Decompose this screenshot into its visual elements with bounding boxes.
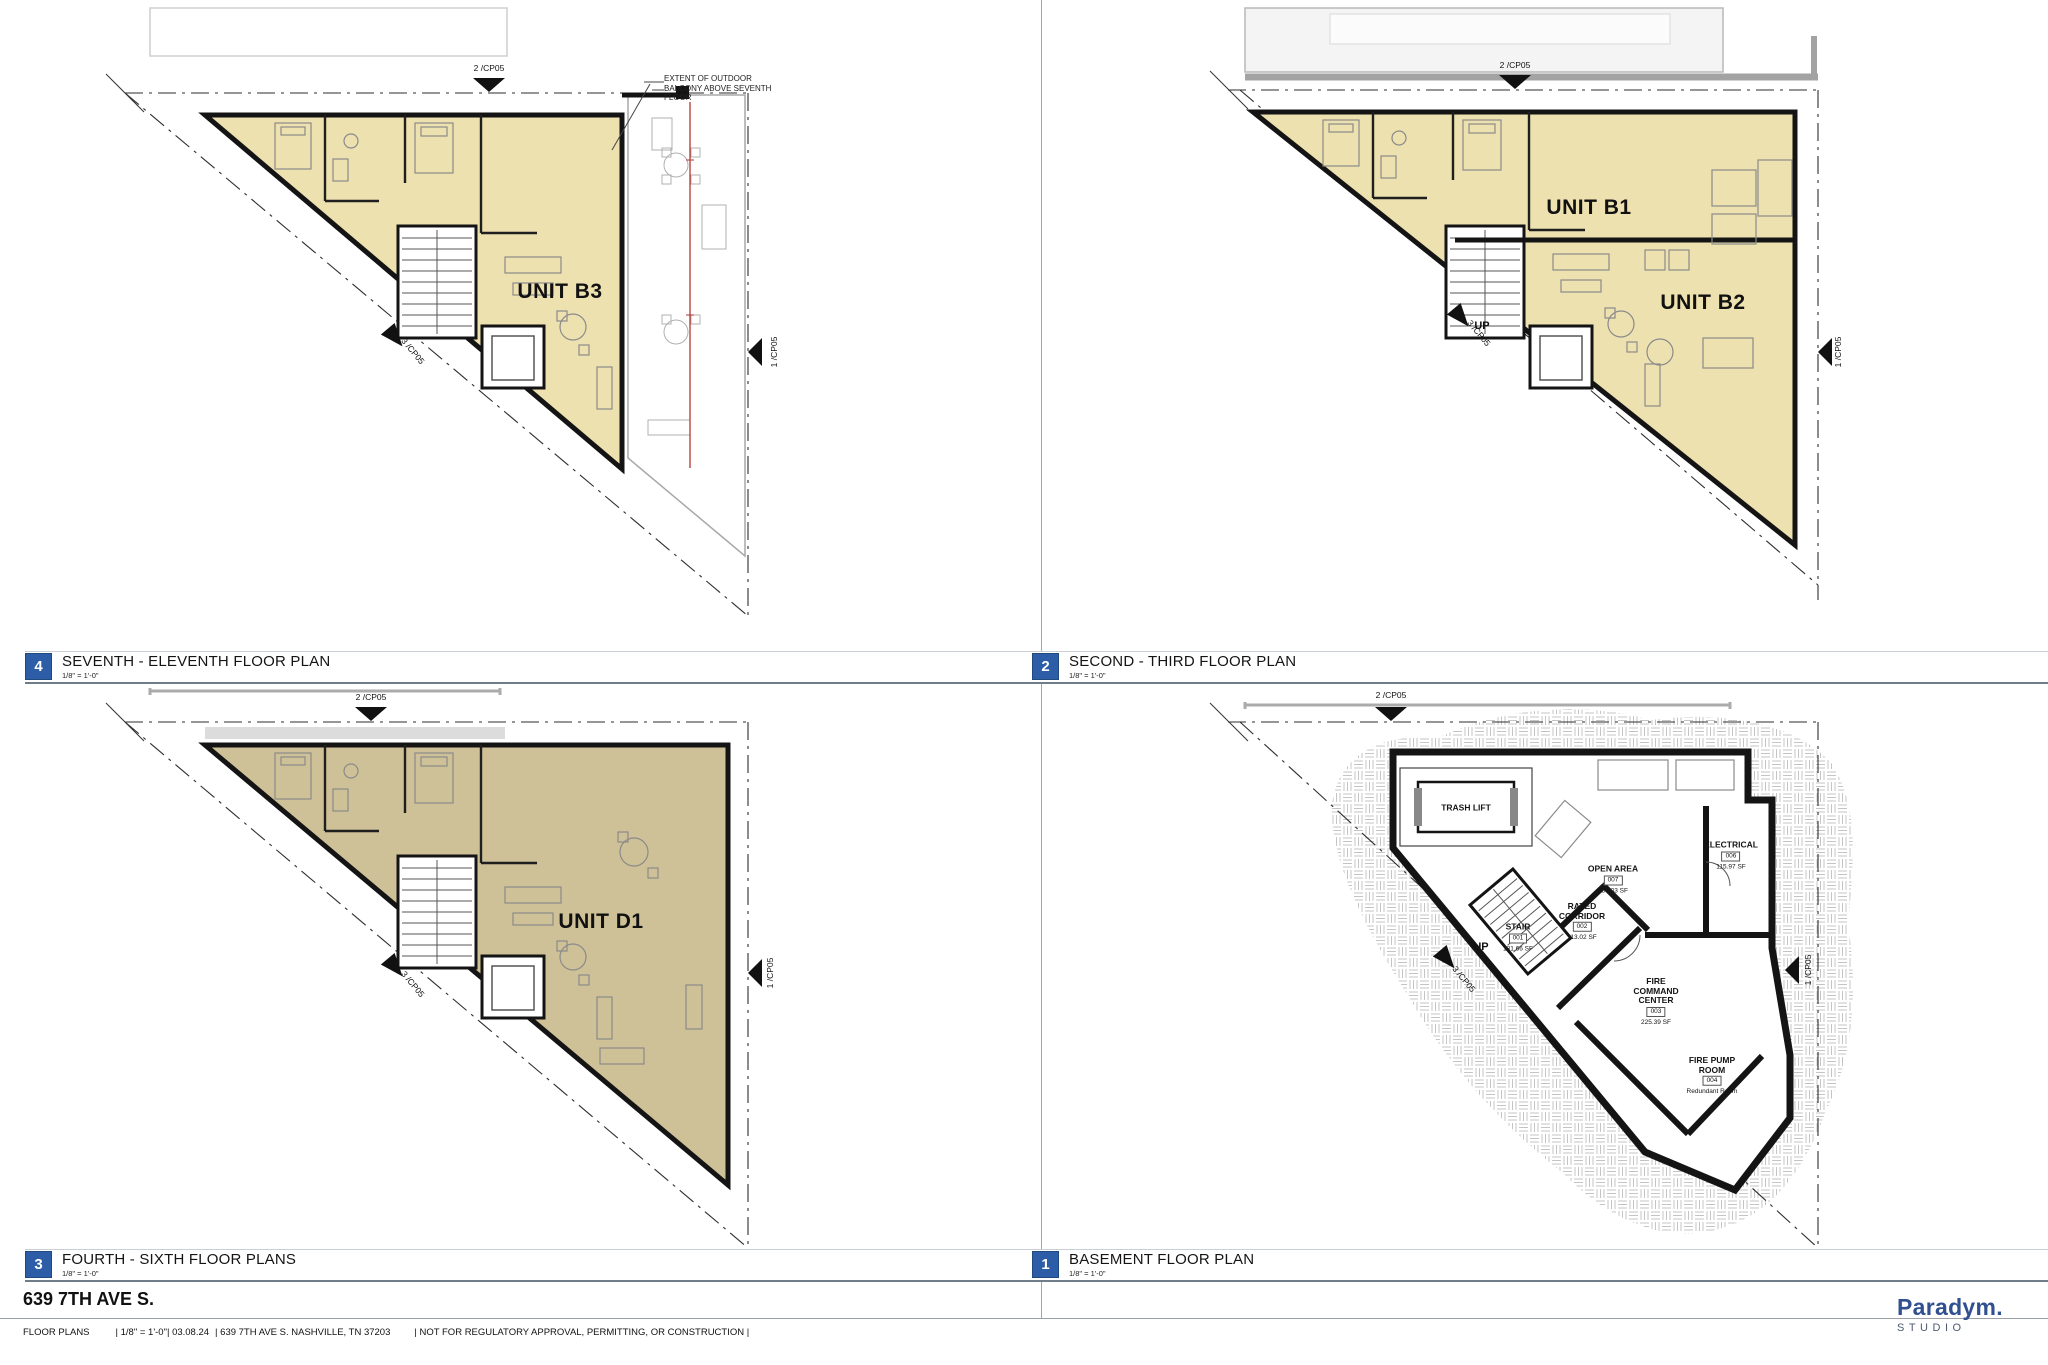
lift-jamb-left [1414, 788, 1422, 826]
panel-scale: 1/8" = 1'-0" [1069, 671, 1296, 680]
section-marker-right-label: 1 /CP05 [1833, 337, 1843, 368]
room-label-open-area: OPEN AREA 007 656.03 SF [1588, 865, 1638, 896]
room-name: FIRE PUMP ROOM [1687, 1056, 1738, 1075]
unit-b2-label: UNIT B2 [1660, 291, 1745, 315]
section-marker-top-label: 2 /CP05 [1500, 60, 1531, 70]
plan-fourth-sixth-floor [106, 688, 762, 1248]
room-name: RATED CORRIDOR [1559, 902, 1605, 921]
room-label-trash-lift: TRASH LIFT [1441, 803, 1491, 813]
room-number-tag: 004 [1703, 1076, 1722, 1086]
panel-title: SEVENTH - ELEVENTH FLOOR PLAN [62, 653, 330, 670]
unit-d1-label: UNIT D1 [558, 910, 643, 934]
section-marker-right-label: 1 /CP05 [765, 958, 775, 989]
section-marker-top-label: 2 /CP05 [474, 63, 505, 73]
lift-jamb-right [1510, 788, 1518, 826]
room-label-rated-corridor: RATED CORRIDOR 002 113.02 SF [1559, 902, 1605, 943]
panel-number-badge: 4 [25, 653, 52, 680]
titlebar-fourth-sixth: 3 FOURTH - SIXTH FLOOR PLANS 1/8" = 1'-0… [25, 1249, 1035, 1282]
section-marker-right-icon [748, 338, 762, 366]
section-marker-top-icon [473, 78, 505, 92]
up-label-basement: UP [1473, 941, 1488, 953]
unit-b1-label: UNIT B1 [1546, 196, 1631, 220]
project-title: 639 7TH AVE S. [23, 1289, 154, 1310]
footer-info-bar: FLOOR PLANS | 1/8" = 1'-0"| 03.08.24 | 6… [23, 1327, 749, 1338]
room-label-fire-command-center: FIRE COMMAND CENTER 003 225.39 SF [1633, 977, 1678, 1027]
unit-b3-label: UNIT B3 [517, 280, 602, 304]
logo-wordmark: Paradym. [1897, 1294, 2003, 1321]
section-marker-right-icon [1818, 338, 1832, 366]
room-name: OPEN AREA [1588, 865, 1638, 875]
footer-sheet-name: FLOOR PLANS [23, 1327, 90, 1338]
plan-basement [1210, 702, 1853, 1248]
room-name: STAIR [1503, 923, 1533, 933]
adjacent-building-inner [1330, 14, 1670, 44]
room-name: TRASH LIFT [1441, 803, 1491, 813]
panel-number-badge: 1 [1032, 1251, 1059, 1278]
titlebar-basement: 1 BASEMENT FLOOR PLAN 1/8" = 1'-0" [1032, 1249, 2048, 1282]
panel-title: FOURTH - SIXTH FLOOR PLANS [62, 1251, 296, 1268]
panel-title: SECOND - THIRD FLOOR PLAN [1069, 653, 1296, 670]
paradym-studio-logo: Paradym. STUDIO [1897, 1294, 2003, 1334]
panel-number-badge: 2 [1032, 653, 1059, 680]
room-area: 181.66 SF [1503, 944, 1533, 954]
room-area: 225.39 SF [1633, 1018, 1678, 1028]
section-marker-right-label: 1 /CP05 [1803, 955, 1813, 986]
panel-number-badge: 3 [25, 1251, 52, 1278]
panel-scale: 1/8" = 1'-0" [62, 671, 330, 680]
drawing-sheet: UNIT B3 UNIT B1 UNIT B2 UNIT D1 UP EXTEN… [0, 0, 2048, 1365]
footer-scale-date: | 1/8" = 1'-0"| 03.08.24 [116, 1327, 210, 1338]
section-marker-right-icon [748, 959, 762, 987]
room-name: FIRE COMMAND CENTER [1633, 977, 1678, 1006]
section-marker-top-label: 2 /CP05 [356, 692, 387, 702]
section-marker-top-icon [1375, 707, 1407, 721]
section-marker-right-label: 1 /CP05 [769, 337, 779, 368]
room-note: Redundant Room [1687, 1087, 1738, 1097]
room-area: 113.02 SF [1559, 933, 1605, 943]
room-number-tag: 003 [1647, 1007, 1666, 1017]
room-number-tag: 006 [1722, 851, 1741, 861]
roof-outline-above [150, 8, 507, 56]
bracket-above [150, 688, 500, 695]
room-number-tag: 002 [1573, 922, 1592, 932]
footer-divider [0, 1318, 2048, 1319]
canopy-above [205, 727, 505, 739]
section-marker-top-label: 2 /CP05 [1376, 690, 1407, 700]
room-label-electrical: ELECTRICAL 006 115.97 SF [1704, 841, 1758, 872]
footer-disclaimer: | NOT FOR REGULATORY APPROVAL, PERMITTIN… [414, 1327, 749, 1338]
room-area: 115.97 SF [1704, 862, 1758, 872]
room-label-stair: STAIR 001 181.66 SF [1503, 923, 1533, 954]
logo-subtitle: STUDIO [1897, 1322, 2003, 1334]
titlebar-second-third: 2 SECOND - THIRD FLOOR PLAN 1/8" = 1'-0" [1032, 651, 2048, 684]
section-marker-top-icon [355, 707, 387, 721]
panel-title: BASEMENT FLOOR PLAN [1069, 1251, 1254, 1268]
titlebar-seventh-eleventh: 4 SEVENTH - ELEVENTH FLOOR PLAN 1/8" = 1… [25, 651, 1035, 684]
room-area: 656.03 SF [1588, 886, 1638, 896]
footer-address: | 639 7TH AVE S. NASHVILLE, TN 37203 [215, 1327, 390, 1338]
room-name: ELECTRICAL [1704, 841, 1758, 851]
room-number-tag: 001 [1509, 933, 1528, 943]
panel-scale: 1/8" = 1'-0" [1069, 1269, 1254, 1278]
balcony-note: EXTENT OF OUTDOOR BALCONY ABOVE SEVENTH … [664, 74, 771, 103]
room-label-fire-pump-room: FIRE PUMP ROOM 004 Redundant Room [1687, 1056, 1738, 1097]
panel-scale: 1/8" = 1'-0" [62, 1269, 296, 1278]
bracket-above [1245, 702, 1730, 709]
section-marker-top-icon [1499, 75, 1531, 89]
room-number-tag: 007 [1604, 875, 1623, 885]
